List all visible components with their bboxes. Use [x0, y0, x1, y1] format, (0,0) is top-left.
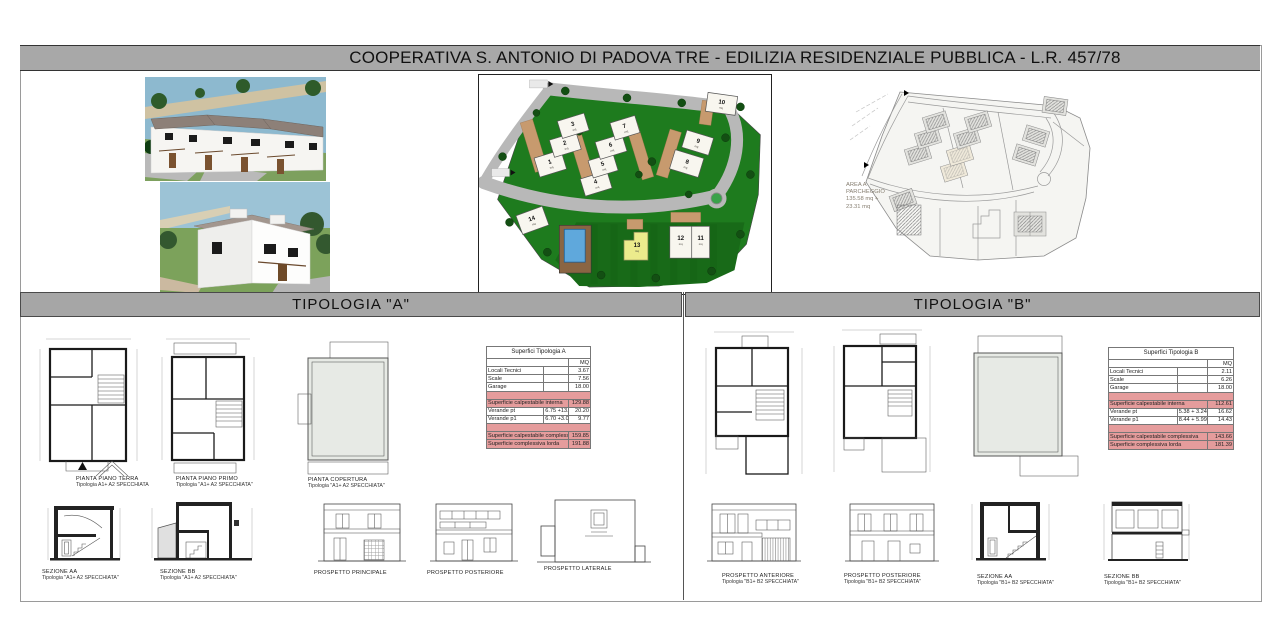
table-superfici-tipologia-b: Superfici Tipologia B MQ Locali Tecnici2… — [1108, 347, 1234, 450]
drawing-a-prospetto-laterale — [535, 492, 653, 568]
drawing-a-prospetto-principale — [314, 498, 410, 566]
drawing-a-pianta-copertura — [296, 338, 396, 476]
section-header-tipologia-a: TIPOLOGIA "A" — [20, 292, 682, 317]
drawing-b-sezione-aa — [968, 496, 1053, 568]
caption-b-prospetto-posteriore: PROSPETTO POSTERIORE Tipologia "B1+ B2 S… — [844, 573, 959, 585]
site-lot: 10mq — [705, 92, 737, 115]
drawing-a-pianta-piano-primo — [158, 337, 258, 477]
table-superfici-tipologia-a: Superfici Tipologia A MQ Locali Tecnici3… — [486, 346, 591, 449]
render-single-house — [160, 182, 330, 293]
drawing-b-pianta-copertura — [956, 332, 1084, 480]
site-lot: 12mq — [670, 226, 692, 258]
site-plan-color-panel: 1mq 2mq 3mq 4mq 5mq 6mq 7mq 8mq 9mq 10mq… — [478, 74, 772, 295]
area-parcheggio-label: AREA A PARCHEGGIO 135.58 mq + 23.31 mq — [846, 182, 908, 211]
section-divider — [683, 292, 684, 600]
svg-text:mq: mq — [635, 249, 639, 253]
drawing-b-pianta-piano-primo — [828, 328, 936, 482]
caption-a-prospetto-posteriore: PROSPETTO POSTERIORE — [427, 570, 542, 576]
drawing-b-prospetto-posteriore — [842, 498, 942, 568]
drawing-b-pianta-piano-terra — [700, 328, 808, 482]
caption-a-sezione-bb: SEZIONE BB Tipologia "A1+ A2 SPECCHIATA" — [160, 569, 275, 581]
caption-a-pianta-piano-primo: PIANTA PIANO PRIMO Tipologia "A1+ A2 SPE… — [176, 476, 291, 488]
table-b-unit-header: MQ — [1207, 360, 1233, 368]
svg-text:mq: mq — [699, 242, 703, 246]
caption-b-sezione-aa: SEZIONE AA Tipologia "B1+ B2 SPECCHIATA" — [977, 574, 1092, 586]
render-single-house-image — [160, 182, 330, 293]
table-a-title: Superfici Tipologia A — [487, 347, 591, 359]
drawing-a-sezione-bb — [150, 496, 255, 568]
pool — [559, 225, 591, 273]
caption-a-prospetto-principale: PROSPETTO PRINCIPALE — [314, 570, 429, 576]
drawing-b-sezione-bb — [1100, 496, 1192, 568]
site-plan-color: 1mq 2mq 3mq 4mq 5mq 6mq 7mq 8mq 9mq 10mq… — [479, 75, 769, 292]
table-b-title: Superfici Tipologia B — [1109, 348, 1234, 360]
drawing-a-pianta-piano-terra — [36, 333, 141, 478]
sheet-title: COOPERATIVA S. ANTONIO DI PADOVA TRE - E… — [349, 48, 1120, 68]
caption-a-pianta-piano-terra: PIANTA PIANO TERRA Tipologia A1+ A2 SPEC… — [76, 476, 191, 488]
drawing-a-sezione-aa — [44, 498, 124, 568]
drawing-a-prospetto-posteriore — [426, 498, 522, 566]
caption-b-sezione-bb: SEZIONE BB Tipologia "B1+ B2 SPECCHIATA" — [1104, 574, 1219, 586]
render-row-houses — [145, 77, 326, 181]
svg-text:mq: mq — [679, 242, 683, 246]
caption-a-sezione-aa: SEZIONE AA Tipologia "A1+ A2 SPECCHIATA" — [42, 569, 157, 581]
drawing-b-prospetto-anteriore — [704, 498, 804, 568]
render-row-houses-image — [145, 77, 326, 181]
caption-a-prospetto-laterale: PROSPETTO LATERALE — [544, 566, 659, 572]
site-lot: 11mq — [692, 226, 710, 258]
caption-b-prospetto-anteriore: PROSPETTO ANTERIORE Tipologia "B1+ B2 SP… — [722, 573, 837, 585]
section-header-tipologia-b: TIPOLOGIA "B" — [685, 292, 1260, 317]
title-bar: COOPERATIVA S. ANTONIO DI PADOVA TRE - E… — [20, 45, 1260, 71]
table-a-unit-header: MQ — [569, 359, 591, 367]
caption-a-pianta-copertura: PIANTA COPERTURA Tipologia "A1+ A2 SPECC… — [308, 477, 423, 489]
